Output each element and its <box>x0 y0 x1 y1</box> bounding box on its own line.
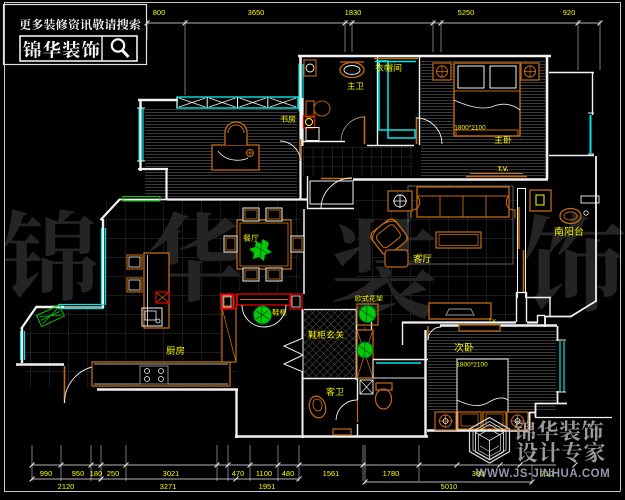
svg-text:250: 250 <box>107 469 120 478</box>
svg-text:920: 920 <box>563 8 576 17</box>
svg-text:3021: 3021 <box>163 469 180 478</box>
svg-text:1100: 1100 <box>256 469 272 478</box>
svg-text:180: 180 <box>90 469 103 478</box>
svg-text:480: 480 <box>282 469 295 478</box>
svg-text:1800*2100: 1800*2100 <box>456 362 488 369</box>
svg-text:800: 800 <box>153 8 166 17</box>
svg-text:990: 990 <box>40 469 53 478</box>
svg-text:3650: 3650 <box>248 8 265 17</box>
svg-text:1830: 1830 <box>345 8 362 17</box>
svg-text:2120: 2120 <box>58 482 75 491</box>
svg-text:3271: 3271 <box>160 482 177 491</box>
svg-text:1951: 1951 <box>259 482 276 491</box>
svg-text:5250: 5250 <box>458 8 475 17</box>
svg-text:T.V.: T.V. <box>498 166 509 173</box>
svg-text:5010: 5010 <box>441 482 458 491</box>
svg-text:1780: 1780 <box>383 469 400 478</box>
svg-text:t.v.: t.v. <box>489 319 497 325</box>
svg-text:950: 950 <box>72 469 85 478</box>
svg-text:WWW.JS-JINHUA.COM: WWW.JS-JINHUA.COM <box>476 468 610 480</box>
svg-text:1561: 1561 <box>323 469 340 478</box>
svg-text:1800*2100: 1800*2100 <box>454 125 486 132</box>
